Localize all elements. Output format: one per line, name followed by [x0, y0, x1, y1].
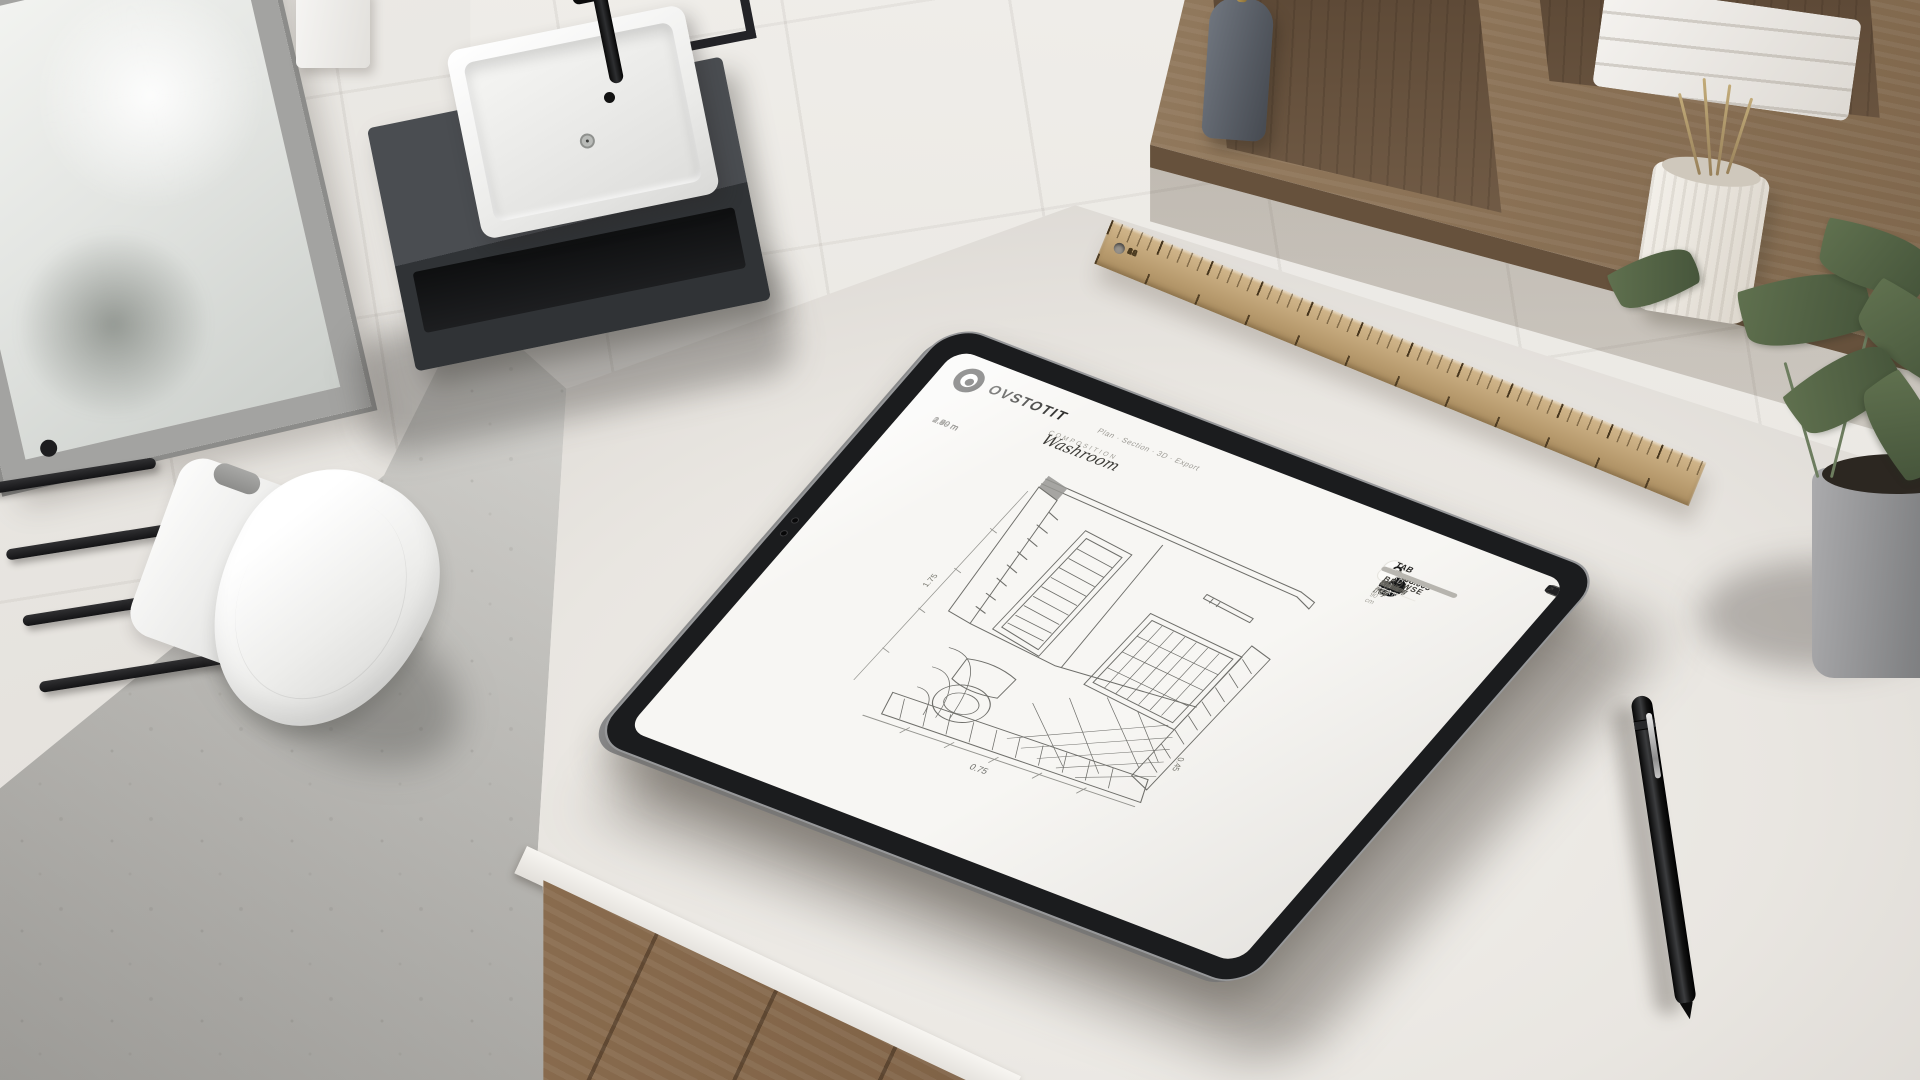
hanging-towel — [296, 0, 370, 68]
window-view-tree — [0, 211, 229, 438]
soap-dispenser — [1201, 0, 1275, 142]
dimension-label-bottom: 0.75 — [967, 762, 990, 776]
ladder-bar — [0, 457, 157, 494]
faucet-base — [604, 92, 615, 103]
bathroom-scene: 24 68 1012 1416 OVSTOTIT Plan · Section … — [0, 0, 1920, 1080]
measurement-row[interactable]: 1.00 m — [905, 399, 927, 424]
basin-bowl — [463, 21, 703, 222]
camera-dot — [789, 516, 800, 524]
dimension-label-left: 1.75 — [921, 572, 941, 588]
window-light — [15, 0, 286, 230]
plant-pot — [1812, 468, 1920, 678]
ruler-hole — [1112, 241, 1126, 255]
cabinet-open-shelf — [412, 207, 746, 333]
side-panel: TAB 01 Shower cabin Mod. 2 2087 07.908.0… — [1391, 558, 1531, 612]
app-brand: OVSTOTIT — [984, 382, 1073, 424]
camera-dot — [778, 529, 789, 537]
dimension-label-right: 0.45 — [1170, 757, 1187, 772]
dispenser-pump — [1237, 0, 1250, 2]
app-logo-icon — [947, 365, 991, 396]
floorplan-sketch: 0.75 1.75 0.45 — [808, 433, 1377, 835]
